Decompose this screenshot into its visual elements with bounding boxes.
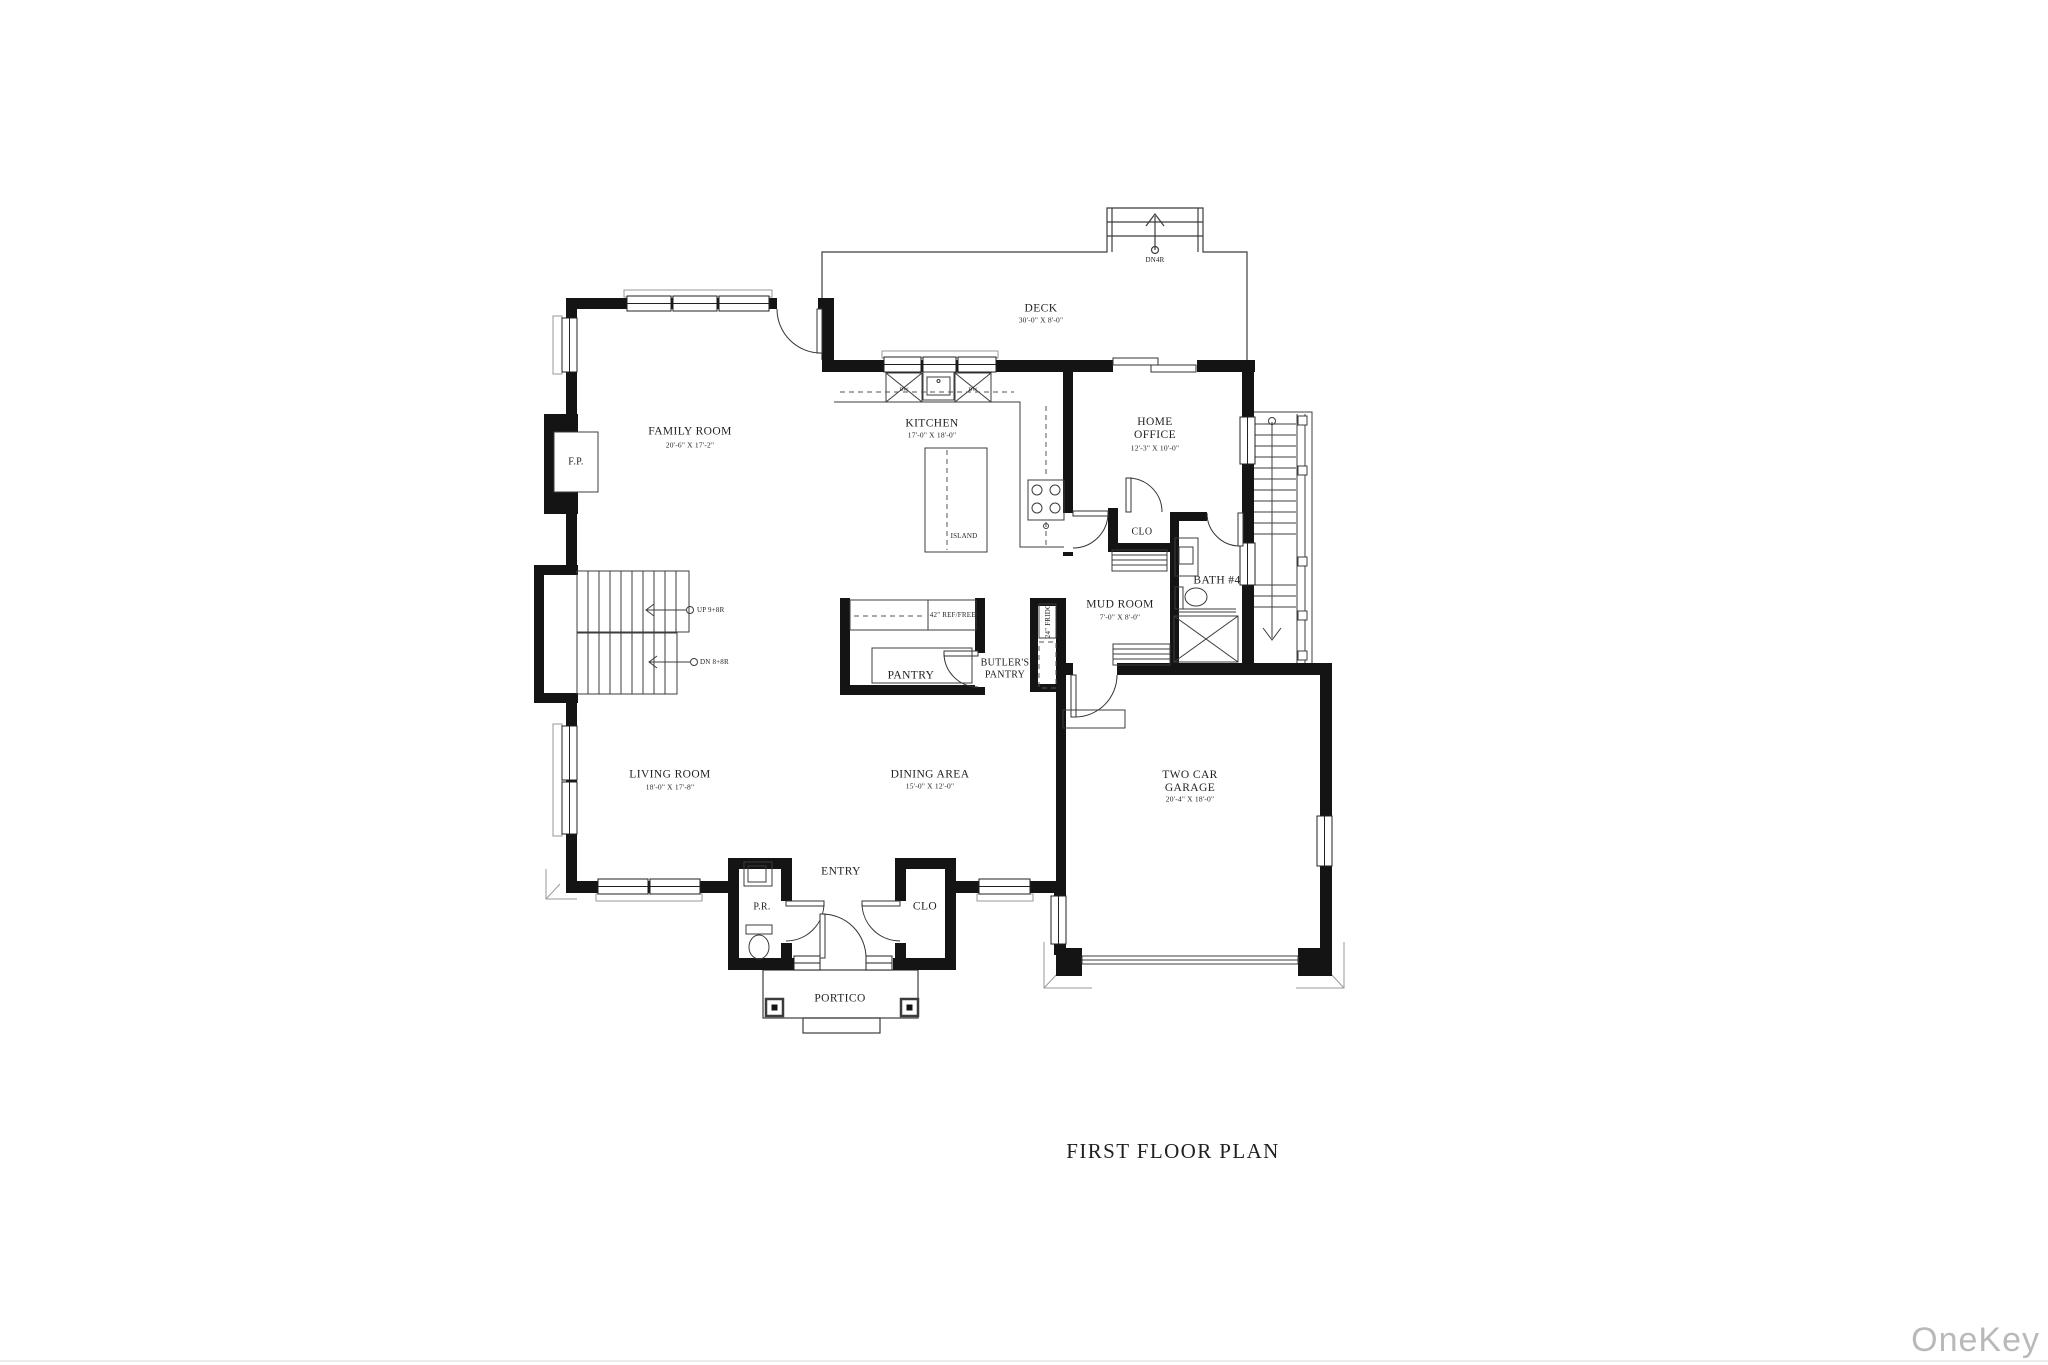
powder-room-label: P.R. bbox=[753, 901, 770, 913]
pantry-label: PANTRY bbox=[888, 669, 935, 682]
bottom-rule bbox=[0, 1360, 2048, 1362]
home-office-dims: 12'-3" X 10'-0" bbox=[1131, 445, 1180, 454]
interior-stair bbox=[577, 571, 698, 694]
living-room-dims: 18'-0" X 17'-8" bbox=[646, 784, 695, 793]
island-label: ISLAND bbox=[951, 532, 978, 540]
ref-freezer-label: 42" REF/FREEZ bbox=[925, 611, 985, 619]
stair-down-note: DN 8+8R bbox=[700, 658, 729, 666]
kitchen-label: KITCHEN bbox=[905, 417, 958, 430]
side-stair bbox=[1250, 412, 1312, 668]
floor-plan-drawing bbox=[0, 0, 2048, 1365]
watermark: OneKey MLS bbox=[1830, 1321, 2040, 1365]
entry-label: ENTRY bbox=[821, 865, 861, 878]
mud-room-dims: 7'-0" X 8'-0" bbox=[1100, 614, 1141, 623]
portico-label: PORTICO bbox=[814, 992, 865, 1005]
bath-fixtures bbox=[744, 538, 1238, 959]
garage-dims: 20'-4" X 18'-0" bbox=[1166, 796, 1215, 805]
fireplace-label: F.P. bbox=[568, 456, 583, 468]
mud-room-label: MUD ROOM bbox=[1086, 598, 1153, 611]
deck-dims: 30'-0" X 8'-0" bbox=[1019, 317, 1064, 326]
dishwasher-label-2: DW bbox=[968, 387, 977, 393]
butlers-pantry-label: BUTLER'S PANTRY bbox=[970, 658, 1040, 681]
fridge-label: 24" FRIDG bbox=[1044, 604, 1052, 638]
floor-plan-canvas: DECK 30'-0" X 8'-0" DN4R FAMILY ROOM 20'… bbox=[0, 0, 2048, 1365]
drawing-title: FIRST FLOOR PLAN bbox=[1066, 1139, 1279, 1163]
deck-label: DECK bbox=[1025, 302, 1058, 315]
living-room-label: LIVING ROOM bbox=[629, 768, 710, 781]
entry-closet-label: CLO bbox=[913, 900, 937, 913]
dishwasher-label: DW bbox=[899, 387, 908, 393]
family-room-label: FAMILY ROOM bbox=[648, 425, 731, 438]
hall-closet-label: CLO bbox=[1132, 526, 1153, 538]
bath4-label: BATH #4 bbox=[1193, 574, 1240, 587]
deck-stair-note: DN4R bbox=[1145, 256, 1164, 264]
garage-label: TWO CAR GARAGE bbox=[1148, 769, 1232, 795]
deck-outline bbox=[822, 208, 1247, 360]
dining-area-dims: 15'-0" X 12'-0" bbox=[906, 783, 955, 792]
kitchen-dims: 17'-0" X 18'-0" bbox=[908, 432, 957, 441]
stair-up-note: UP 9+8R bbox=[697, 606, 724, 614]
family-room-dims: 20'-6" X 17'-2" bbox=[666, 442, 715, 451]
home-office-label: HOME OFFICE bbox=[1116, 416, 1194, 442]
dining-area-label: DINING AREA bbox=[891, 768, 970, 781]
